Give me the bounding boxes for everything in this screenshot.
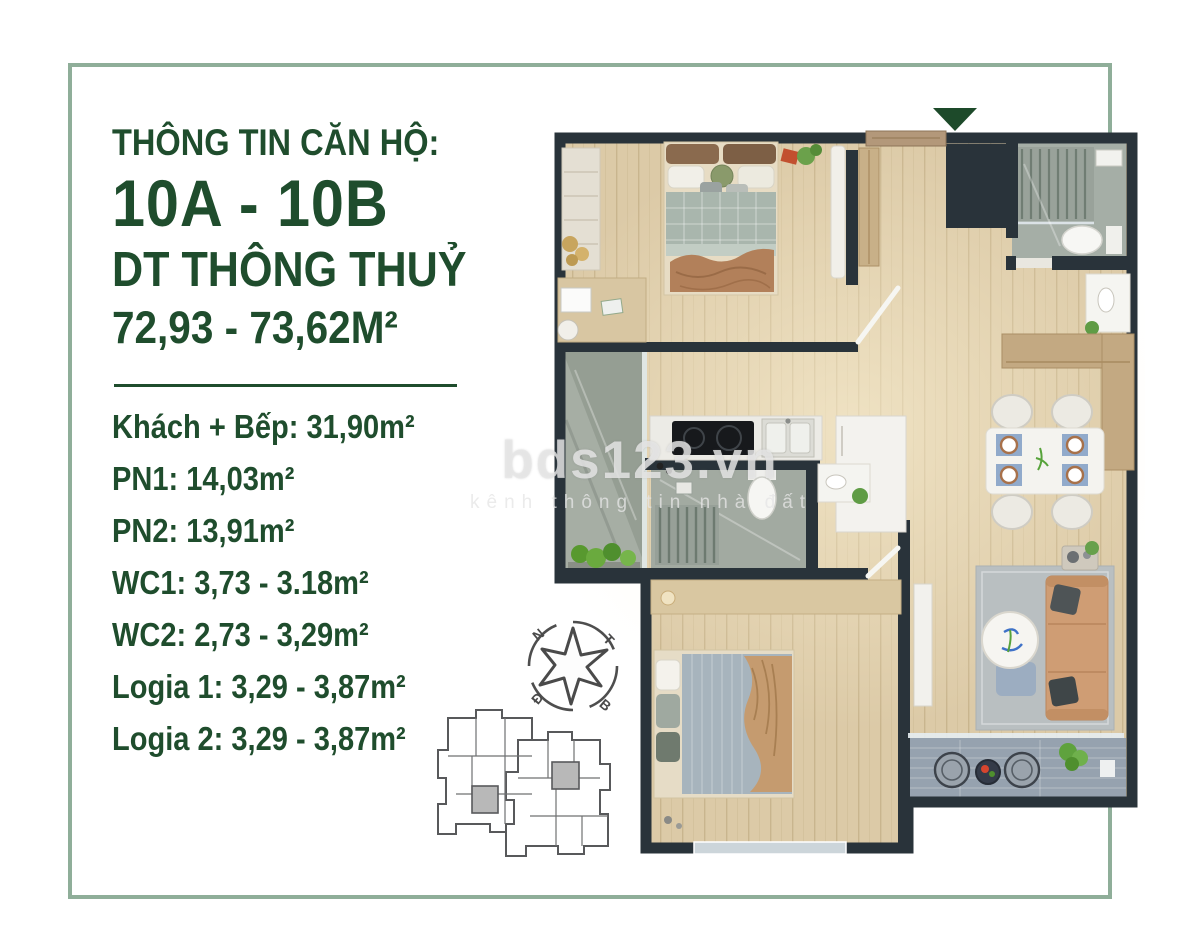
bathroom-2 <box>651 468 807 570</box>
tv-console <box>914 584 932 706</box>
panel-title: THÔNG TIN CĂN HỘ: <box>112 120 467 166</box>
compass-letter-n: N <box>529 625 547 644</box>
washbasin-2 <box>818 464 870 504</box>
bathroom-1 <box>1012 143 1126 259</box>
entrance-door <box>866 131 946 146</box>
building-key-plan <box>428 696 623 868</box>
unit-info-panel: THÔNG TIN CĂN HỘ: 10A - 10B DT THÔNG THU… <box>112 120 515 765</box>
room-area-item: Logia 2: 3,29 - 3,87m² <box>112 713 467 765</box>
room-area-item: PN2: 13,91m² <box>112 505 467 557</box>
area-value: 72,93 - 73,62M² <box>112 300 475 356</box>
wc1-door <box>1016 258 1052 268</box>
bedroom-2-window <box>694 842 846 854</box>
floor-plan <box>550 100 1145 862</box>
room-area-item: WC2: 2,73 - 3,29m² <box>112 609 467 661</box>
unit-code: 10A - 10B <box>112 166 475 240</box>
room-area-item: Logia 1: 3,29 - 3,87m² <box>112 661 467 713</box>
room-area-item: Khách + Bếp: 31,90m² <box>112 401 467 453</box>
room-area-item: PN1: 14,03m² <box>112 453 467 505</box>
area-label: DT THÔNG THUỶ <box>112 240 467 300</box>
balcony-1 <box>563 352 647 574</box>
highlighted-unit <box>552 762 579 789</box>
room-area-item: WC1: 3,73 - 3.18m² <box>112 557 467 609</box>
divider-line <box>114 384 457 387</box>
entrance-arrow-icon <box>933 108 977 131</box>
highlighted-unit <box>472 786 498 813</box>
washbasin-1 <box>1085 274 1130 335</box>
balcony-glass <box>908 733 1124 738</box>
